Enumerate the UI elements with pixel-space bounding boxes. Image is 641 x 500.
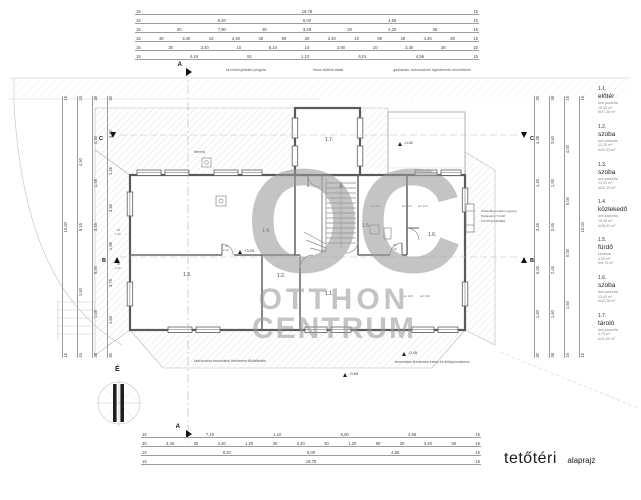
chimney-label: kémény bbox=[194, 150, 206, 154]
dim-value: 3,35 bbox=[109, 204, 113, 212]
north-needle-icon bbox=[113, 384, 117, 422]
room-label-1-6: 1.6. bbox=[428, 232, 436, 238]
door-dim-height: 2,10 bbox=[223, 248, 229, 252]
dim-value: 10 bbox=[208, 37, 215, 41]
dim-value: 3,75 bbox=[109, 279, 113, 287]
dim-value: 4,50 bbox=[79, 158, 83, 166]
dim-value: 1,45 bbox=[109, 167, 113, 175]
dim-value: 4,58 bbox=[387, 19, 397, 23]
dim-value: 15 bbox=[472, 46, 479, 50]
dim-value: 7,90 bbox=[217, 28, 227, 32]
dim-value: 10 bbox=[353, 37, 360, 41]
dim-value: 30 bbox=[158, 37, 165, 41]
dim-value: 15 bbox=[472, 37, 479, 41]
note-eaves: bevonatos fémlemez eresz és lefolyócsato… bbox=[352, 360, 512, 364]
dim-value: 15 bbox=[135, 19, 142, 23]
dim-value: 4,38 bbox=[536, 136, 540, 144]
dim-value: 1,05 bbox=[94, 310, 98, 318]
drawing-subtitle: alaprajz bbox=[567, 456, 595, 465]
note-firewall: kétvízorros bevonatos fémlemez tűzfalfed… bbox=[140, 359, 320, 363]
level-eave-b: -0,60 bbox=[349, 371, 359, 376]
window-parapet-label: pm 110 bbox=[402, 204, 412, 208]
dim-value: 38 bbox=[94, 96, 98, 101]
dim-value: 15 bbox=[474, 460, 481, 464]
dim-value: 30 bbox=[536, 96, 540, 101]
dim-value: 90 bbox=[376, 37, 383, 41]
room-gross-area: br22,10 m² bbox=[598, 186, 640, 191]
dim-chain-right-4: 1515,0015 bbox=[579, 96, 589, 358]
dim-value: 3,40 bbox=[181, 37, 191, 41]
room-gross-area: br22,28 m² bbox=[598, 299, 640, 304]
dim-value: 2,90 bbox=[336, 46, 346, 50]
dim-value: 1,60 bbox=[551, 310, 555, 318]
dim-value: 3,40 bbox=[296, 442, 306, 446]
dim-value: 4,58 bbox=[407, 433, 417, 437]
dim-value: 10 bbox=[304, 46, 311, 50]
dim-value: 3,40 bbox=[404, 46, 414, 50]
dim-value: 3,40 bbox=[165, 442, 175, 446]
section-b-left-label: B bbox=[102, 258, 106, 264]
dim-value: 15 bbox=[64, 96, 68, 101]
dim-value: 15,00 bbox=[64, 222, 68, 232]
note-velux: Velux tetősík ablak bbox=[295, 68, 361, 72]
room-name: szoba bbox=[598, 169, 640, 176]
dim-value: 30 bbox=[323, 442, 330, 446]
room-gross-area: br11,90 m² bbox=[598, 337, 640, 342]
dim-value: 3,60 bbox=[551, 136, 555, 144]
legend-room-entry: 1.3. szoba lam.parketta 13,04 m² br22,10… bbox=[598, 162, 640, 191]
north-arrow: É bbox=[96, 364, 142, 426]
dim-chain-left-1: 1515,0015 bbox=[62, 96, 72, 358]
dim-chain-bottom-4: 1518,7815 bbox=[141, 457, 481, 465]
dim-value: 1,10 bbox=[272, 433, 282, 437]
dim-value: 15 bbox=[474, 433, 481, 437]
dim-value: 15 bbox=[135, 28, 142, 32]
room-gross-area: br8,70 m² bbox=[598, 261, 640, 266]
room-name: szoba bbox=[598, 131, 640, 138]
dim-value: 15 bbox=[141, 460, 148, 464]
dim-value: 1,20 bbox=[244, 442, 254, 446]
dim-value: 15 bbox=[472, 10, 479, 14]
dim-value: 8,20 bbox=[217, 19, 227, 23]
dim-value: 8,20 bbox=[222, 451, 232, 455]
dim-value: 1,60 bbox=[566, 301, 570, 309]
room-name: szoba bbox=[598, 282, 640, 289]
dim-value: 10 bbox=[372, 46, 379, 50]
north-needle-icon bbox=[120, 384, 124, 422]
room-number: 1.5. bbox=[598, 237, 640, 243]
dim-value: 30 bbox=[536, 353, 540, 358]
dim-value: 30 bbox=[346, 28, 353, 32]
dim-chain-left-4: 303,401,453,351,953,751,6030 bbox=[107, 96, 117, 358]
room-gross-area: br20,33 m² bbox=[598, 148, 640, 153]
dim-value: 1,45 bbox=[94, 179, 98, 187]
dim-value: 1,10 bbox=[300, 55, 310, 59]
room-number: 1.2. bbox=[598, 124, 640, 130]
room-number: 1.3. bbox=[598, 162, 640, 168]
dim-value: 15,00 bbox=[581, 222, 585, 232]
dim-value: 30 bbox=[176, 28, 183, 32]
dim-chain-bottom-3: 158,206,004,5815 bbox=[141, 448, 481, 456]
room-name: közlekedő bbox=[598, 206, 640, 213]
dim-value: 1,60 bbox=[536, 310, 540, 318]
room-name: tároló bbox=[598, 320, 640, 327]
dim-value: 6,01 bbox=[358, 55, 368, 59]
room-legend: 1.1. előtér lam.parketta 16,43 m² br27,3… bbox=[598, 86, 640, 350]
dim-chain-right-3: 154,006,005,001,6015 bbox=[564, 96, 574, 358]
dim-value: 30 bbox=[109, 96, 113, 101]
room-gross-area: br28,02 m² bbox=[598, 224, 640, 229]
room-gross-area: br27,36 m² bbox=[598, 110, 640, 115]
dim-value: 90 bbox=[281, 37, 288, 41]
dim-value: 9,15 bbox=[79, 223, 83, 231]
dim-value: 1,20 bbox=[347, 442, 357, 446]
legend-room-entry: 1.4. közlekedő lam.parketta 15,38 m² br2… bbox=[598, 199, 640, 228]
dim-chain-top-4: 15303,40104,403090303,401090304,203815 bbox=[135, 34, 479, 42]
dim-value: 15 bbox=[135, 37, 142, 41]
dim-value: 4,58 bbox=[390, 451, 400, 455]
legend-room-entry: 1.6. szoba lam.parketta 13,43 m² br22,28… bbox=[598, 275, 640, 304]
floor-plan-sheet: A A B B C C 1.7. 1.4. 1.5. 1.6. 1.3. 1.2… bbox=[0, 0, 641, 500]
level-eave-a: -0,45 bbox=[408, 350, 418, 355]
room-number: 1.6. bbox=[598, 275, 640, 281]
dim-value: 8,10 bbox=[268, 46, 278, 50]
dim-value: 38 bbox=[440, 46, 447, 50]
dim-value: 3,45 bbox=[94, 223, 98, 231]
dim-value: 5,00 bbox=[566, 249, 570, 257]
level-flag-icon bbox=[343, 373, 347, 377]
section-a-top-label: A bbox=[178, 62, 183, 68]
dim-chain-left-3: 384,201,453,455,001,0538 bbox=[92, 96, 102, 358]
window-parapet-label: pm 110 bbox=[403, 294, 413, 298]
section-b-right-arrow-icon bbox=[521, 257, 527, 263]
room-name: fürdő bbox=[598, 244, 640, 251]
room-label-1-1: 1.1. bbox=[325, 291, 333, 297]
dim-chain-bottom-1: 157,101,106,004,5815 bbox=[141, 430, 481, 438]
heat-pump-line2: Panasonic T-CAP bbox=[481, 214, 505, 218]
legend-room-entry: 1.5. fürdő kerámia 4,93 m² br8,70 m² bbox=[598, 237, 640, 266]
dim-chain-bottom-2: 303,40304,401,20303,40301,2090303,403815 bbox=[141, 439, 481, 447]
dim-value: 90 bbox=[375, 442, 382, 446]
dim-value: 3,40 bbox=[423, 442, 433, 446]
dim-value: 4,56 bbox=[415, 55, 425, 59]
dim-value: 18,78 bbox=[301, 10, 313, 14]
section-c-right-arrow-icon bbox=[521, 132, 527, 138]
dim-value: 4,20 bbox=[387, 28, 397, 32]
dim-value: 30 bbox=[399, 442, 406, 446]
dim-value: 15 bbox=[472, 55, 479, 59]
dim-value: 30 bbox=[167, 46, 174, 50]
dim-value: 15 bbox=[141, 433, 148, 437]
dim-value: 1,40 bbox=[536, 179, 540, 187]
dim-value: 1,60 bbox=[109, 316, 113, 324]
dim-value: 30 bbox=[304, 37, 311, 41]
dim-value: 30 bbox=[109, 353, 113, 358]
dim-value: 5,00 bbox=[94, 266, 98, 274]
dim-value: 15 bbox=[135, 46, 142, 50]
legend-room-entry: 1.2. szoba lam.parketta 12,25 m² br20,33… bbox=[598, 124, 640, 153]
dim-value: 30 bbox=[141, 442, 148, 446]
dim-value: 38 bbox=[94, 353, 98, 358]
dim-value: 15 bbox=[141, 451, 148, 455]
dim-value: 15 bbox=[472, 19, 479, 23]
chimney bbox=[202, 158, 211, 167]
room-label-1-7: 1.7. bbox=[325, 137, 333, 143]
dim-chain-top-1: 1518,7815 bbox=[135, 7, 479, 15]
dim-value: 4,20 bbox=[423, 37, 433, 41]
dim-value: 15 bbox=[566, 353, 570, 358]
dim-value: 91 bbox=[246, 55, 253, 59]
room-label-1-4: 1.4. bbox=[262, 228, 270, 234]
dim-value: 15 bbox=[79, 96, 83, 101]
legend-room-entry: 1.1. előtér lam.parketta 16,43 m² br27,3… bbox=[598, 86, 640, 115]
door-dim-height: 2,10 bbox=[391, 247, 397, 251]
dim-value: 3,45 bbox=[536, 223, 540, 231]
dim-value: 15 bbox=[474, 442, 481, 446]
dim-chain-top-6: 154,19911,106,014,5615 bbox=[135, 52, 479, 60]
dim-value: 15 bbox=[581, 353, 585, 358]
room-label-1-5: 1.5. bbox=[362, 223, 370, 229]
dim-value: 10 bbox=[235, 46, 242, 50]
dim-value: 15 bbox=[79, 353, 83, 358]
dim-chain-right-2: 383,601,003,452,451,6038 bbox=[549, 96, 559, 358]
heat-pump-line1: hőszivattyú kültéri egység bbox=[481, 209, 517, 213]
dim-value: 4,40 bbox=[231, 37, 241, 41]
dim-chain-top-3: 15307,90303,40304,203815 bbox=[135, 25, 479, 33]
dim-value: 6,00 bbox=[340, 433, 350, 437]
dim-value: 1,95 bbox=[109, 242, 113, 250]
room-number: 1.4. bbox=[598, 199, 640, 205]
window-parapet-label: pm 110 bbox=[418, 204, 428, 208]
dim-value: 4,00 bbox=[566, 145, 570, 153]
room-label-1-2: 1.2. bbox=[277, 273, 285, 279]
drawing-title: tetőtéri bbox=[504, 450, 557, 467]
window-parapet-label: pm 110 bbox=[420, 294, 430, 298]
dim-chain-top-5: 15303,40108,10102,90103,403815 bbox=[135, 43, 479, 51]
legend-room-entry: 1.7. tároló lam.parketta 4,75 m² br11,90… bbox=[598, 313, 640, 342]
dim-value: 1,00 bbox=[551, 179, 555, 187]
dim-chain-right-1: 304,381,403,455,001,6030 bbox=[534, 96, 544, 358]
window-parapet-label: pm 110 bbox=[371, 204, 381, 208]
dim-value: 3,40 bbox=[302, 28, 312, 32]
dim-value: 15 bbox=[566, 96, 570, 101]
dim-value: 4,20 bbox=[94, 136, 98, 144]
room-number: 1.1. bbox=[598, 86, 640, 92]
dim-value: 30 bbox=[261, 28, 268, 32]
dim-value: 15 bbox=[135, 55, 142, 59]
dim-chain-top-2: 158,206,004,5815 bbox=[135, 16, 479, 24]
dim-value: 30 bbox=[272, 442, 279, 446]
north-label: É bbox=[115, 364, 120, 373]
dim-value: 15 bbox=[135, 10, 142, 14]
room-label-1-3: 1.3. bbox=[183, 272, 191, 278]
dim-value: 38 bbox=[551, 353, 555, 358]
dim-value: 30 bbox=[399, 37, 406, 41]
dim-value: 2,45 bbox=[551, 266, 555, 274]
dim-value: 6,00 bbox=[566, 197, 570, 205]
note-boiler: gázkazán, turbócsöves égéstermék elvezet… bbox=[362, 68, 502, 72]
dim-value: 38 bbox=[551, 96, 555, 101]
dim-value: 15 bbox=[474, 451, 481, 455]
dim-value: 15 bbox=[64, 353, 68, 358]
heat-pump-line3: KIT-WXC16H9E8 bbox=[481, 219, 505, 223]
dim-value: 38 bbox=[450, 442, 457, 446]
dim-value: 15 bbox=[581, 96, 585, 101]
dim-value: 3,45 bbox=[551, 223, 555, 231]
note-pergola: fa növényfuttató pergola bbox=[196, 68, 296, 72]
title-block: tetőtéri alaprajz bbox=[504, 450, 595, 468]
dim-value: 1,60 bbox=[79, 288, 83, 296]
dim-value: 3,40 bbox=[109, 130, 113, 138]
dim-value: 38 bbox=[449, 37, 456, 41]
dim-value: 4,19 bbox=[189, 55, 199, 59]
heat-pump-callout: hőszivattyú kültéri egység Panasonic T-C… bbox=[481, 209, 517, 223]
dim-value: 3,40 bbox=[327, 37, 337, 41]
dim-value: 15 bbox=[472, 28, 479, 32]
section-a-top-arrow-icon bbox=[186, 68, 192, 76]
room-name: előtér bbox=[598, 93, 640, 100]
level-terrace: -0,02 bbox=[404, 140, 414, 145]
dim-value: 3,40 bbox=[200, 46, 210, 50]
room-number: 1.7. bbox=[598, 313, 640, 319]
heat-pump-unit bbox=[466, 204, 474, 232]
dim-value: 7,10 bbox=[205, 433, 215, 437]
dim-value: 38 bbox=[431, 28, 438, 32]
dim-value: 30 bbox=[193, 442, 200, 446]
dim-value: 6,00 bbox=[302, 19, 312, 23]
dim-chain-left-2: 154,509,151,6015 bbox=[77, 96, 87, 358]
dim-value: 30 bbox=[257, 37, 264, 41]
dim-value: 6,00 bbox=[306, 451, 316, 455]
dim-value: 5,00 bbox=[536, 266, 540, 274]
dim-value: 4,40 bbox=[217, 442, 227, 446]
dim-value: 18,78 bbox=[305, 460, 317, 464]
level-attic: +3,00 bbox=[244, 248, 255, 253]
